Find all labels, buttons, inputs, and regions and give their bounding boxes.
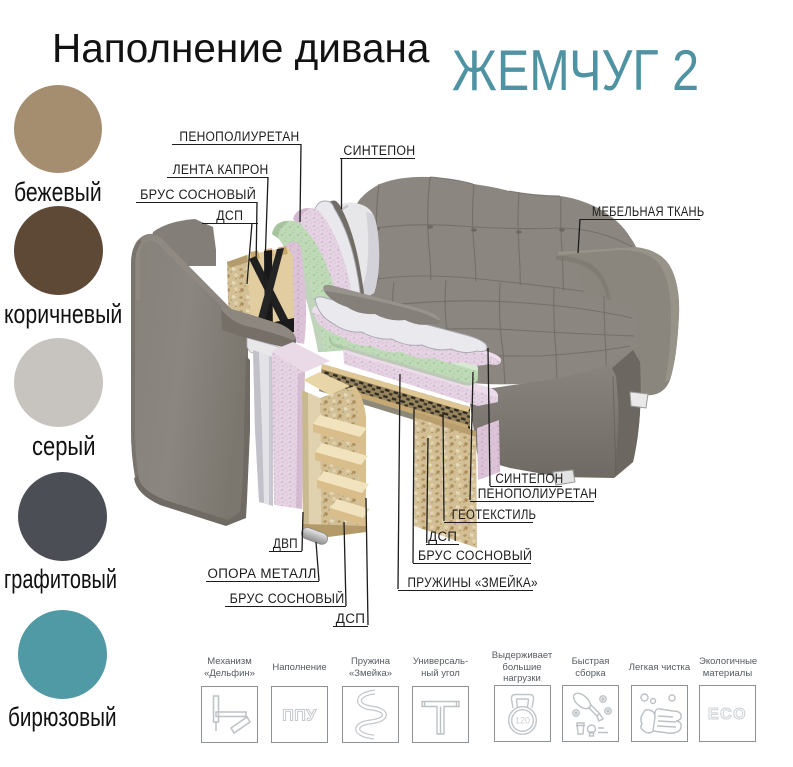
svg-text:120: 120	[515, 716, 530, 726]
svg-text:ППУ: ППУ	[282, 708, 317, 725]
svg-text:ECO: ECO	[708, 706, 747, 723]
